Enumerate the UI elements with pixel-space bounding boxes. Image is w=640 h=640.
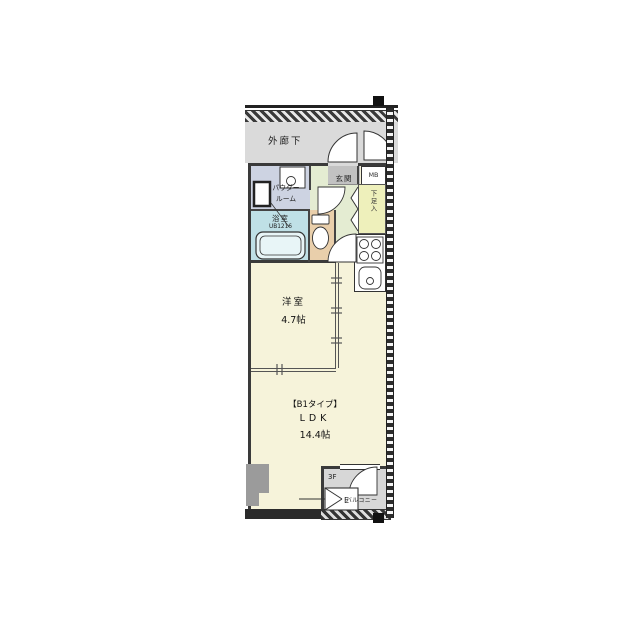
meter-box-label: MB bbox=[362, 167, 385, 184]
section-marker-top bbox=[373, 96, 384, 106]
balcony-wall-left bbox=[321, 466, 324, 512]
wall-toilet-right bbox=[334, 210, 336, 262]
sliding-door-partition-horizontal bbox=[251, 368, 336, 372]
balcony-label: バルコニー bbox=[346, 495, 377, 504]
kitchen-counter bbox=[354, 234, 386, 292]
entrance-label: 玄関 bbox=[336, 174, 353, 183]
bathroom-name: 浴室 bbox=[251, 213, 310, 224]
wall-powder-right bbox=[309, 166, 311, 190]
floor-indicator: 3F bbox=[328, 473, 336, 481]
floor-plan: 外廊下 玄関 MB 下足入 bbox=[0, 0, 640, 640]
pillar-left-step bbox=[246, 492, 259, 506]
bottom-outer-wall bbox=[245, 509, 323, 519]
meter-box: MB bbox=[361, 166, 386, 185]
section-marker-bottom bbox=[373, 513, 384, 523]
entrance-genkan: 玄関 bbox=[328, 166, 360, 185]
ldk-size: 14.4帖 bbox=[263, 427, 367, 441]
balcony-window bbox=[340, 464, 380, 470]
powder-room-label-line1: パウダー bbox=[264, 183, 308, 194]
ldk-label: 【B1タイプ】 LDK 14.4帖 bbox=[263, 398, 367, 441]
ldk-type: 【B1タイプ】 bbox=[263, 398, 367, 410]
western-room-label: 洋室 4.7帖 bbox=[251, 294, 336, 326]
toilet-room bbox=[309, 210, 335, 262]
wall-powder-bath bbox=[251, 209, 310, 211]
powder-room-label-line2: ルーム bbox=[264, 194, 308, 205]
wall-bath-bottom bbox=[251, 260, 336, 263]
bathroom-label: 浴室 UB1216 bbox=[251, 213, 310, 230]
party-wall-dotted bbox=[386, 108, 394, 518]
pillar-left bbox=[246, 464, 269, 493]
ldk-name: LDK bbox=[263, 413, 367, 424]
wall-hall-right bbox=[357, 166, 359, 184]
western-room-name: 洋室 bbox=[251, 294, 336, 308]
bathroom-size: UB1216 bbox=[251, 224, 310, 230]
western-room-size: 4.7帖 bbox=[251, 312, 336, 326]
shoe-storage-label: 下足入 bbox=[368, 190, 378, 213]
powder-room-label: パウダー ルーム bbox=[264, 183, 308, 204]
outer-corridor-label: 外廊下 bbox=[268, 133, 303, 147]
